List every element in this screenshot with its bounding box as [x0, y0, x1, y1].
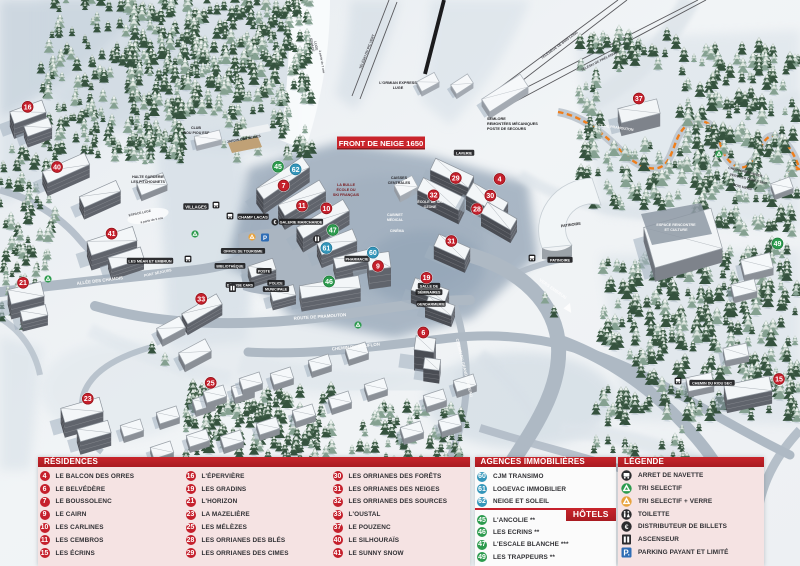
svg-text:LA BULLE: LA BULLE	[337, 183, 356, 187]
svg-text:61: 61	[323, 245, 331, 252]
svg-text:CAISSES: CAISSES	[391, 176, 408, 180]
svg-text:PHARMACIE: PHARMACIE	[346, 257, 369, 261]
svg-text:23: 23	[84, 396, 92, 403]
svg-text:OFFICE DE TOURISME: OFFICE DE TOURISME	[223, 249, 263, 253]
svg-text:MUNICIPALE: MUNICIPALE	[265, 288, 288, 292]
svg-text:POSTE DE SECOURS: POSTE DE SECOURS	[487, 127, 526, 131]
svg-text:L'ORMIAN EXPRESS: L'ORMIAN EXPRESS	[379, 81, 417, 85]
svg-text:REMONTÉES MÉCANIQUES: REMONTÉES MÉCANIQUES	[487, 121, 538, 126]
svg-text:16: 16	[24, 104, 32, 111]
svg-text:P: P	[263, 236, 267, 242]
svg-text:CINÉMA: CINÉMA	[390, 228, 405, 233]
svg-text:€: €	[274, 220, 277, 226]
svg-text:GENDARMERIE: GENDARMERIE	[417, 302, 445, 306]
svg-text:ÉCOLE DU: ÉCOLE DU	[336, 187, 355, 192]
svg-text:VILLAGES: VILLAGES	[185, 204, 207, 209]
svg-text:9: 9	[376, 263, 380, 270]
svg-text:LAVERIE: LAVERIE	[456, 151, 473, 155]
svg-text:CHAMP LACAS: CHAMP LACAS	[238, 214, 268, 219]
svg-text:7: 7	[282, 183, 286, 190]
svg-text:62: 62	[292, 167, 300, 174]
svg-text:25: 25	[207, 380, 215, 387]
svg-text:POSTE: POSTE	[258, 269, 271, 273]
svg-text:CLUB: CLUB	[191, 126, 201, 130]
svg-text:40: 40	[53, 164, 61, 171]
svg-text:ESPACE RENCONTRE: ESPACE RENCONTRE	[656, 223, 696, 227]
svg-text:11: 11	[298, 203, 306, 210]
svg-text:SEMLORE: SEMLORE	[487, 117, 506, 121]
svg-text:46: 46	[325, 279, 333, 286]
svg-text:CENTRALES: CENTRALES	[388, 181, 411, 185]
svg-text:21: 21	[19, 280, 27, 287]
svg-text:47: 47	[329, 227, 337, 234]
svg-text:BIBLIOTHÈQUE: BIBLIOTHÈQUE	[216, 263, 244, 268]
svg-text:HALTE GARDERIE: HALTE GARDERIE	[132, 175, 164, 179]
svg-text:CHEMIN DU RIOU SEC: CHEMIN DU RIOU SEC	[692, 381, 732, 385]
svg-text:SÉMINAIRES: SÉMINAIRES	[418, 290, 441, 295]
svg-text:OZONE: OZONE	[424, 205, 437, 209]
svg-text:LES MÉAN ET EMBRUN: LES MÉAN ET EMBRUN	[128, 258, 172, 263]
svg-text:6: 6	[421, 330, 425, 337]
svg-text:ET CULTURE: ET CULTURE	[664, 228, 688, 232]
svg-text:LUGE: LUGE	[393, 86, 404, 90]
svg-text:45: 45	[274, 164, 282, 171]
svg-text:15: 15	[775, 376, 783, 383]
svg-text:GALERIE MARCHANDE: GALERIE MARCHANDE	[280, 220, 323, 224]
svg-text:49: 49	[774, 241, 782, 248]
svg-text:19: 19	[423, 275, 431, 282]
svg-text:PIOU PIOU ESF: PIOU PIOU ESF	[183, 131, 210, 135]
svg-text:P.: P.	[623, 549, 630, 558]
svg-text:31: 31	[447, 238, 455, 245]
svg-text:€: €	[625, 524, 629, 531]
svg-text:SKI FRANÇAIS: SKI FRANÇAIS	[333, 193, 360, 197]
svg-text:POLICE: POLICE	[269, 281, 283, 285]
svg-text:33: 33	[197, 296, 205, 303]
svg-text:28: 28	[473, 206, 481, 213]
svg-text:LES PITCHOUNETS: LES PITCHOUNETS	[131, 180, 165, 184]
svg-text:37: 37	[635, 96, 643, 103]
svg-text:30: 30	[486, 193, 494, 200]
svg-text:CABINET: CABINET	[387, 213, 404, 217]
svg-text:4: 4	[498, 176, 502, 183]
svg-text:MÉDICAL: MÉDICAL	[387, 217, 404, 222]
svg-text:10: 10	[323, 206, 331, 213]
svg-text:32: 32	[430, 193, 438, 200]
svg-text:PATINOIRE: PATINOIRE	[550, 258, 571, 262]
svg-text:60: 60	[369, 250, 377, 257]
svg-text:41: 41	[108, 231, 116, 238]
svg-text:29: 29	[452, 175, 460, 182]
svg-text:FRONT DE NEIGE 1650: FRONT DE NEIGE 1650	[339, 139, 424, 148]
svg-text:SALLE DE: SALLE DE	[420, 284, 439, 288]
